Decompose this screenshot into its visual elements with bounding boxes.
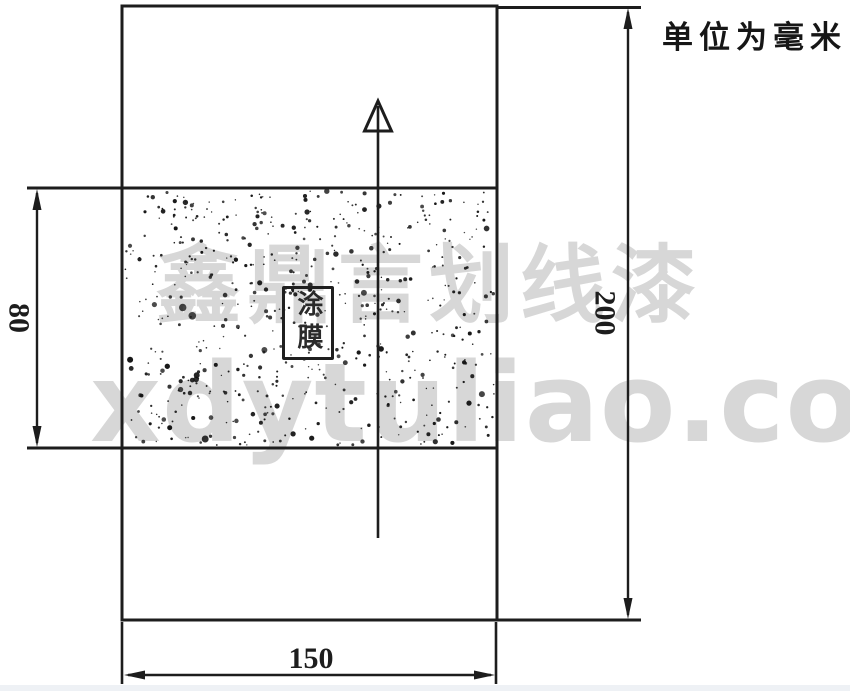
coating-film-label: 涂膜 — [295, 290, 321, 356]
dim-label-150: 150 — [289, 642, 334, 675]
dim-arrow-80-top — [33, 189, 42, 210]
technical-drawing: 80 200 150 — [0, 0, 850, 691]
dim-arrow-200-bottom — [624, 598, 633, 619]
unit-note: 单位为毫米 — [662, 12, 847, 57]
dim-label-200: 200 — [589, 291, 622, 336]
dim-label-80: 80 — [3, 303, 36, 333]
coating-film-label-box: 涂膜 — [282, 286, 334, 360]
dim-arrow-150-left — [124, 671, 145, 680]
dim-arrow-200-top — [624, 8, 633, 29]
dim-arrow-80-bottom — [33, 426, 42, 447]
specimen-diagram: 鑫鼎言划线漆 xdytuliao.com 80 200 150 — [0, 0, 850, 691]
dim-arrow-150-right — [474, 671, 495, 680]
